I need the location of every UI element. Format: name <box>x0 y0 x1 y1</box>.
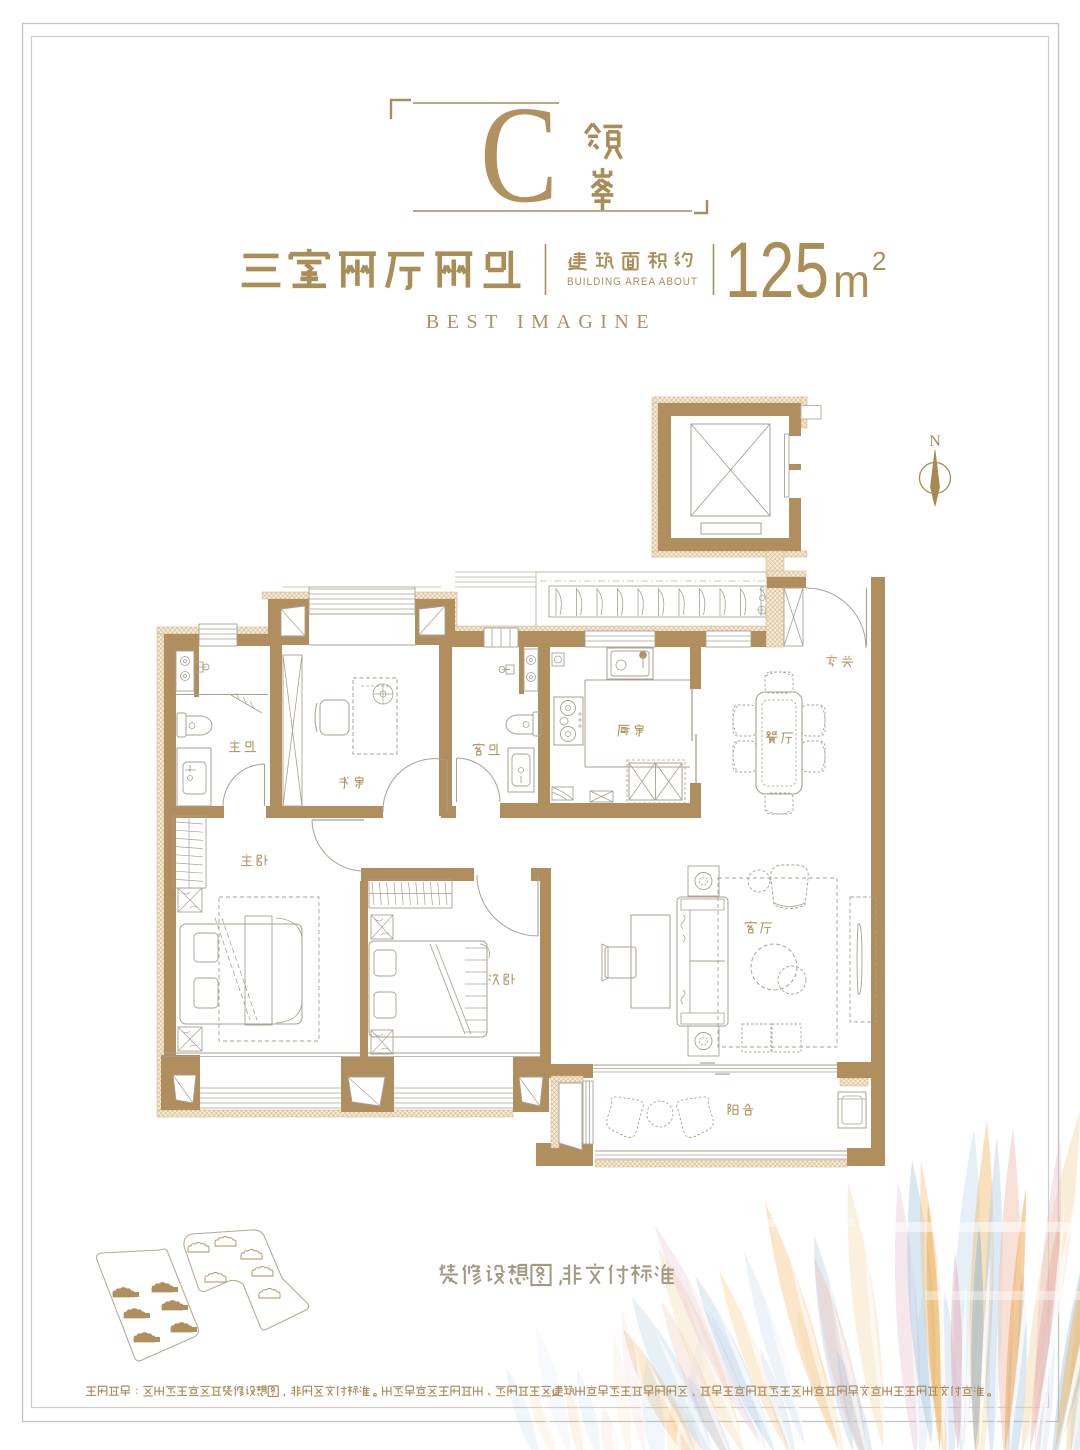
svg-text:C: C <box>480 78 558 232</box>
svg-text:m: m <box>833 255 870 307</box>
svg-text:125: 125 <box>725 225 829 314</box>
svg-text:N: N <box>929 433 941 450</box>
svg-text:BEST IMAGINE: BEST IMAGINE <box>426 311 656 333</box>
svg-text:2: 2 <box>872 246 886 276</box>
svg-text:BUILDING AREA ABOUT: BUILDING AREA ABOUT <box>567 276 698 288</box>
